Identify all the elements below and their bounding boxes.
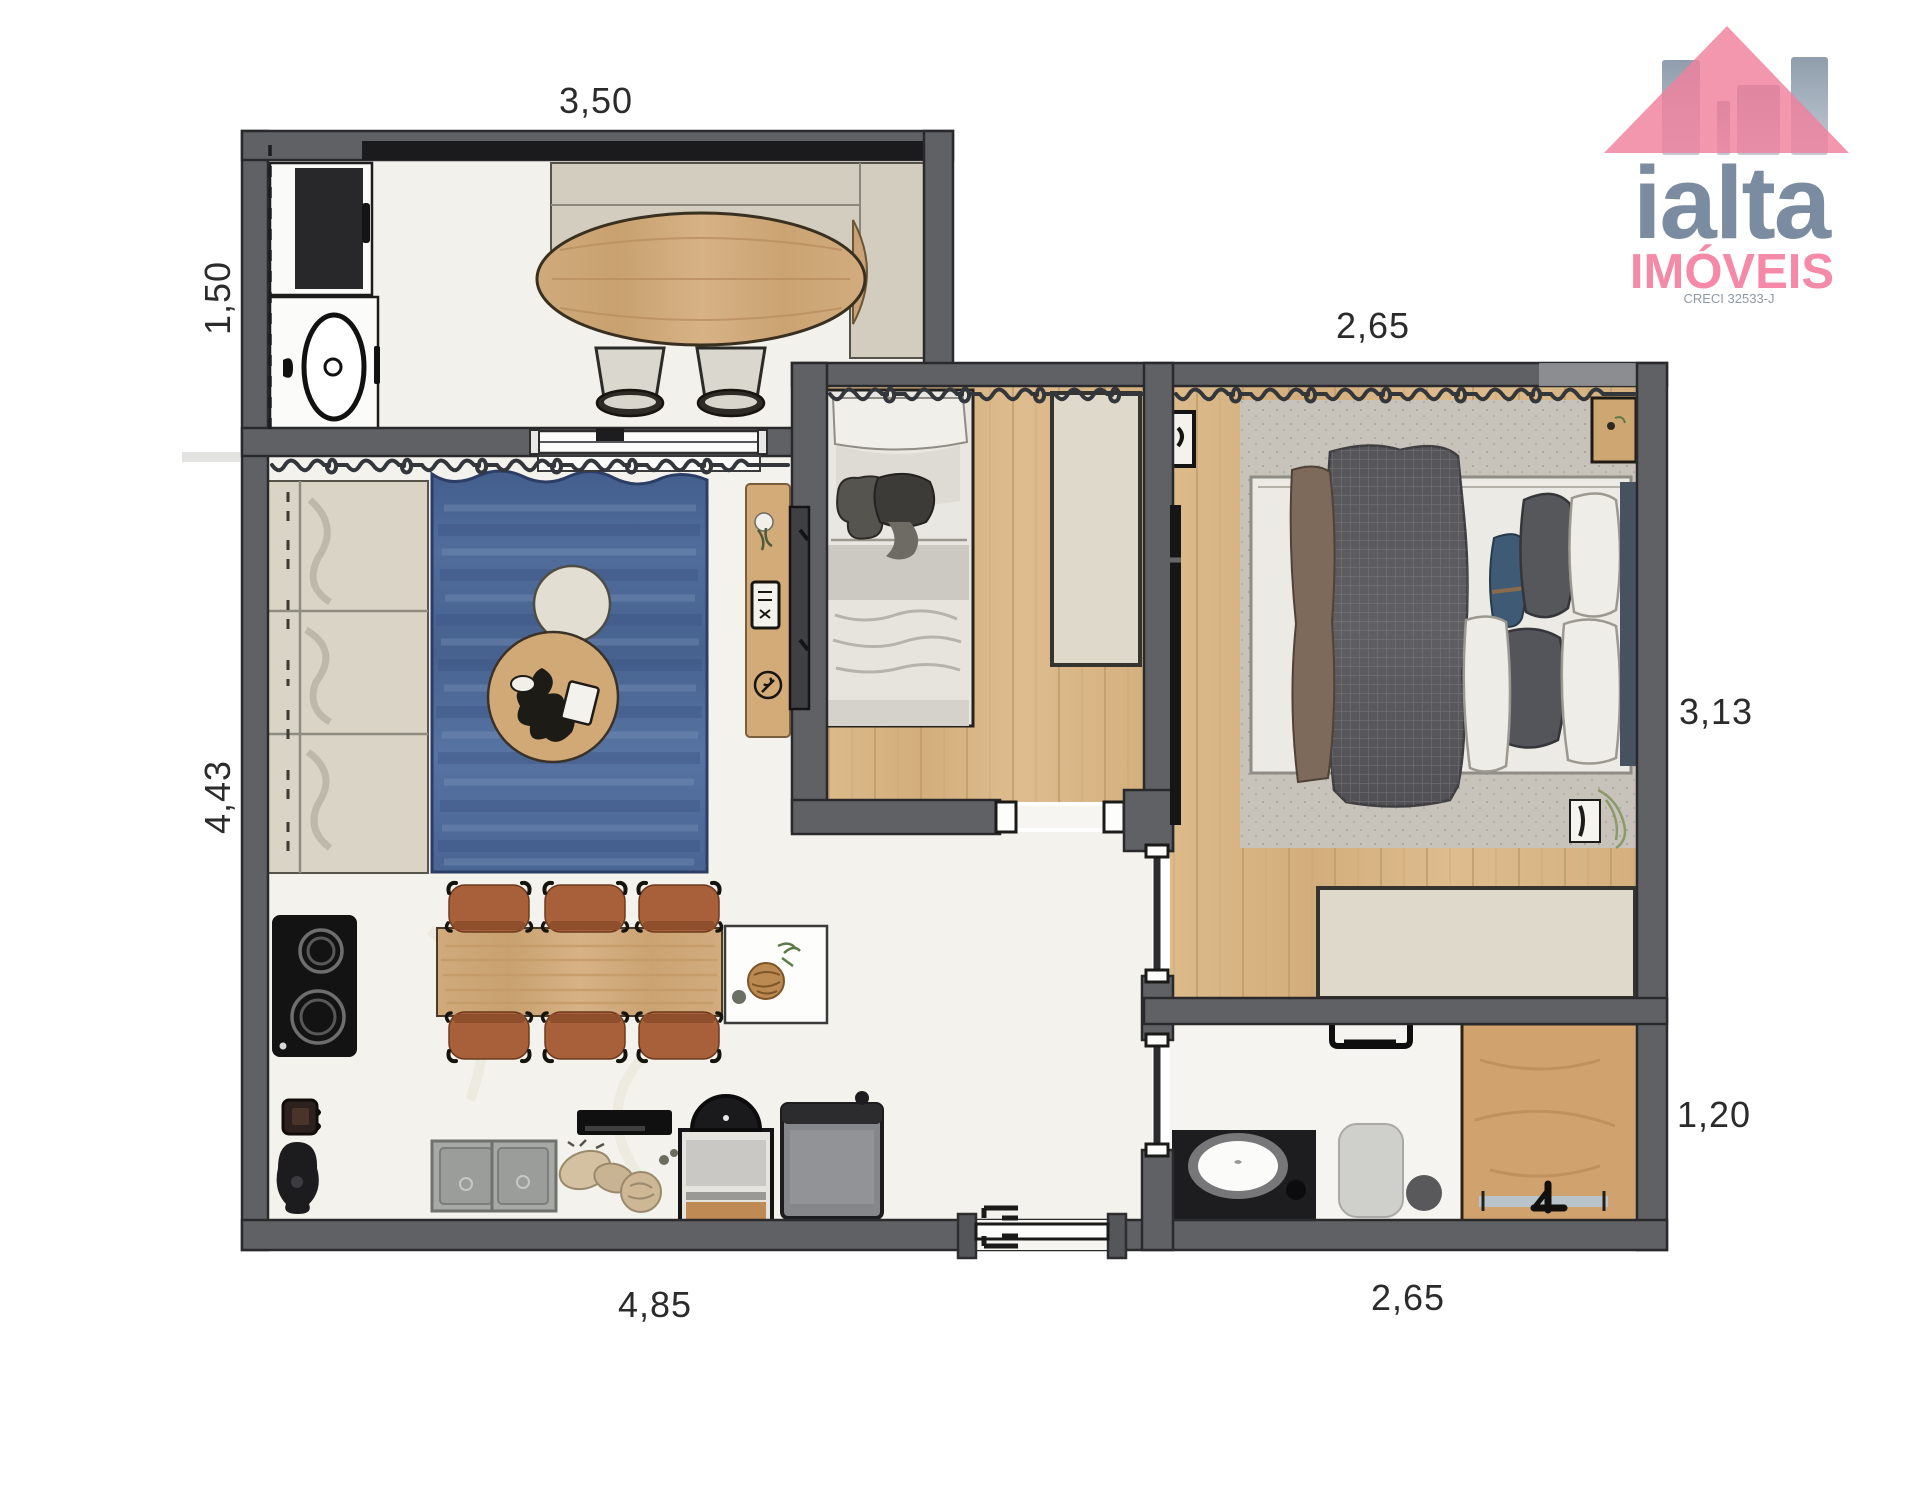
svg-text:2,65: 2,65 [1371, 1277, 1445, 1318]
svg-text:3,13: 3,13 [1679, 691, 1753, 732]
svg-text:2,65: 2,65 [1336, 305, 1410, 346]
svg-text:3,50: 3,50 [559, 80, 633, 121]
svg-text:4,43: 4,43 [197, 760, 238, 834]
svg-text:CRECI 32533-J: CRECI 32533-J [1683, 291, 1774, 306]
svg-text:ialta: ialta [1633, 145, 1832, 260]
svg-text:1,50: 1,50 [197, 261, 238, 335]
svg-text:4,85: 4,85 [618, 1284, 692, 1325]
svg-text:1,20: 1,20 [1677, 1094, 1751, 1135]
